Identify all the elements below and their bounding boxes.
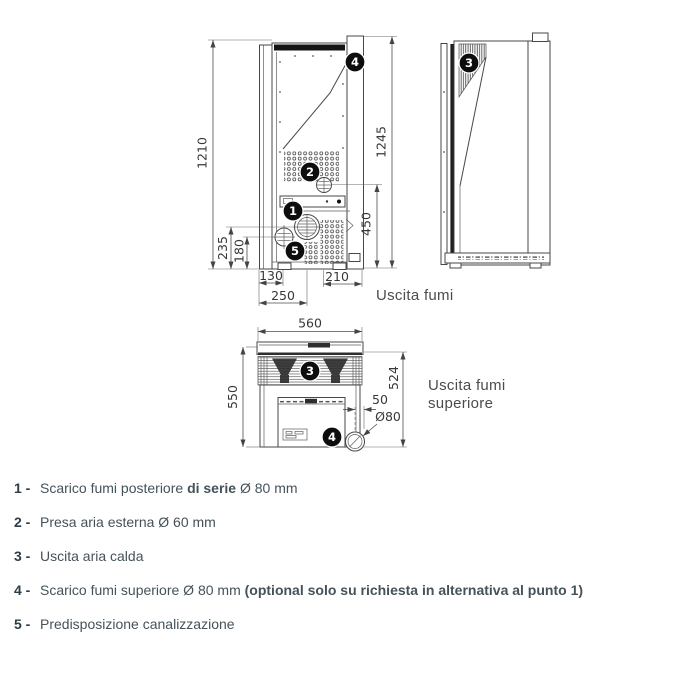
side-front-strip <box>441 44 447 265</box>
callout-4-top: 4 <box>322 427 342 447</box>
dim-depth-right: 524 <box>386 366 401 390</box>
legend: 1 - Scarico fumi posteriore di serie Ø 8… <box>14 481 690 651</box>
svg-text:2: 2 <box>306 165 314 179</box>
legend-item-text: Presa aria esterna Ø 60 mm <box>40 515 216 530</box>
lower-vent-grid-right <box>321 220 344 264</box>
legend-item-text: Uscita aria calda <box>40 549 144 564</box>
legend-item-number: 3 - <box>14 549 40 564</box>
legend-item-number: 5 - <box>14 617 40 632</box>
legend-item-number: 4 - <box>14 583 40 598</box>
dim-diameter: Ø80 <box>375 409 401 424</box>
legend-item-2: 2 - Presa aria esterna Ø 60 mm <box>14 515 690 530</box>
dim-180: 180 <box>232 239 247 263</box>
lower-vent-grid-left <box>305 242 318 264</box>
side-foot-left <box>450 263 461 268</box>
legend-item-text: Scarico fumi superiore Ø 80 mm (optional… <box>40 583 583 598</box>
dim-250: 250 <box>271 288 295 303</box>
technical-drawing-page: 1210 1245 450 235 180 130 250 210 Uscita… <box>0 0 700 700</box>
dim-width: 560 <box>298 316 322 331</box>
dim-235: 235 <box>215 236 230 260</box>
legend-item-number: 2 - <box>14 515 40 530</box>
rear-top-grille <box>274 45 345 51</box>
legend-item-5: 5 - Predisposizione canalizzazione <box>14 617 690 632</box>
callout-5: 5 <box>285 241 305 261</box>
dim-210: 210 <box>325 269 349 284</box>
svg-text:5: 5 <box>291 244 299 258</box>
callout-3-top: 3 <box>300 361 320 381</box>
side-top-block <box>533 33 549 42</box>
legend-item-4: 4 - Scarico fumi superiore Ø 80 mm (opti… <box>14 583 690 598</box>
dim-height-right: 1245 <box>374 126 389 158</box>
legend-item-text: Predisposizione canalizzazione <box>40 617 235 632</box>
legend-item-1: 1 - Scarico fumi posteriore di serie Ø 8… <box>14 481 690 496</box>
svg-text:3: 3 <box>465 56 473 70</box>
top-view: 560 <box>225 316 505 452</box>
side-foot-right <box>530 263 541 268</box>
callout-3: 3 <box>459 53 479 73</box>
dim-height-left: 1210 <box>195 137 210 169</box>
callout-1: 1 <box>283 201 303 221</box>
legend-item-number: 1 - <box>14 481 40 496</box>
side-view: 3 <box>441 33 550 268</box>
callout-4: 4 <box>345 52 365 72</box>
legend-item-text: Scarico fumi posteriore di serie Ø 80 mm <box>40 481 298 496</box>
label-uscita-fumi-superiore-2: superiore <box>428 395 493 412</box>
drawing-canvas: 1210 1245 450 235 180 130 250 210 Uscita… <box>0 0 700 472</box>
dim-depth-left: 550 <box>225 385 240 409</box>
column-box <box>349 254 360 262</box>
svg-text:4: 4 <box>351 55 359 69</box>
dim-flue-height: 450 <box>359 212 374 236</box>
label-uscita-fumi-superiore-1: Uscita fumi <box>428 377 505 394</box>
rear-left-panel <box>260 45 273 269</box>
label-uscita-fumi: Uscita fumi <box>376 287 453 304</box>
svg-text:4: 4 <box>328 430 336 444</box>
dim-offset: 50 <box>372 392 388 407</box>
top-flue-pipe <box>346 432 365 451</box>
legend-item-3: 3 - Uscita aria calda <box>14 549 690 564</box>
svg-text:3: 3 <box>306 364 314 378</box>
dim-130: 130 <box>259 268 283 283</box>
air-intake-port <box>317 178 332 193</box>
rear-view: 1210 1245 450 235 180 130 250 210 Uscita… <box>195 36 454 306</box>
callout-2: 2 <box>300 162 320 182</box>
svg-text:1: 1 <box>289 204 297 218</box>
